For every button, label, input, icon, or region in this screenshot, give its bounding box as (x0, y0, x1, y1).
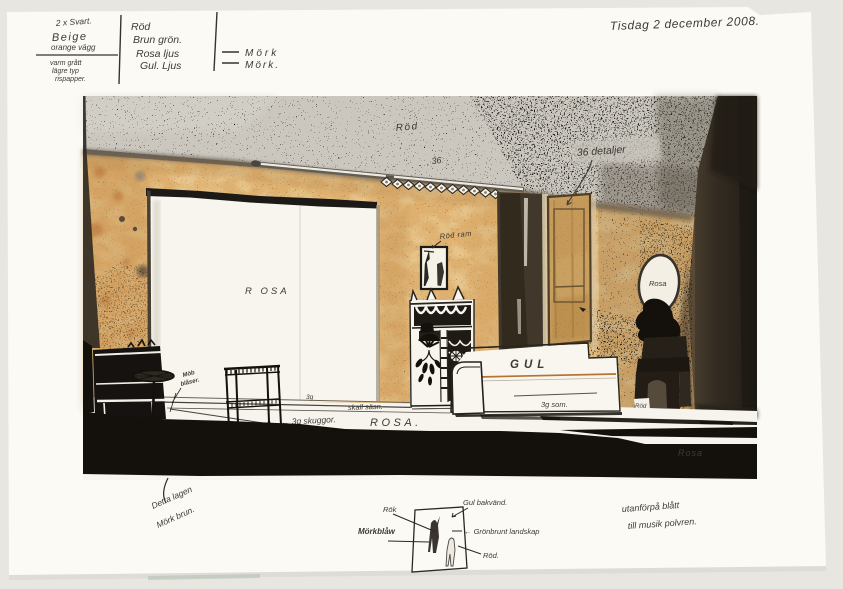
svg-text:Brun grön.: Brun grön. (133, 34, 182, 46)
svg-text:Rök: Rök (383, 505, 398, 514)
svg-text:Beige: Beige (52, 31, 88, 44)
svg-text:rispapper.: rispapper. (55, 76, 86, 83)
svg-text:Mörkblåw: Mörkblåw (358, 527, 396, 536)
svg-text:3g som.: 3g som. (541, 400, 568, 409)
svg-text:orange vägg: orange vägg (51, 43, 96, 52)
svg-text:GUL: GUL (510, 359, 549, 371)
svg-text:Röd.: Röd. (483, 551, 499, 560)
svg-text:varm grått: varm grått (50, 59, 83, 67)
svg-text:lägre typ: lägre typ (52, 68, 79, 75)
svg-text:← Grönbrunt landskap: ← Grönbrunt landskap (464, 527, 539, 536)
svg-text:Gul. Ljus: Gul. Ljus (140, 60, 182, 72)
svg-text:R OSA: R OSA (245, 286, 290, 297)
svg-text:ROSA.: ROSA. (370, 417, 422, 429)
svg-text:Röd: Röd (395, 121, 419, 134)
svg-text:Gul bakvänd.: Gul bakvänd. (463, 498, 507, 507)
svg-text:Röd: Röd (131, 21, 151, 33)
svg-text:Rosa: Rosa (649, 279, 667, 288)
svg-text:Mörk: Mörk (245, 48, 279, 59)
svg-text:Rosa ljus: Rosa ljus (136, 48, 180, 60)
svg-text:Mörk.: Mörk. (245, 60, 280, 71)
svg-text:3g: 3g (306, 394, 314, 401)
svg-text:, 36: , 36 (426, 155, 442, 167)
svg-text:skall säsn.: skall säsn. (348, 402, 383, 412)
svg-text:Rosa: Rosa (678, 448, 703, 458)
